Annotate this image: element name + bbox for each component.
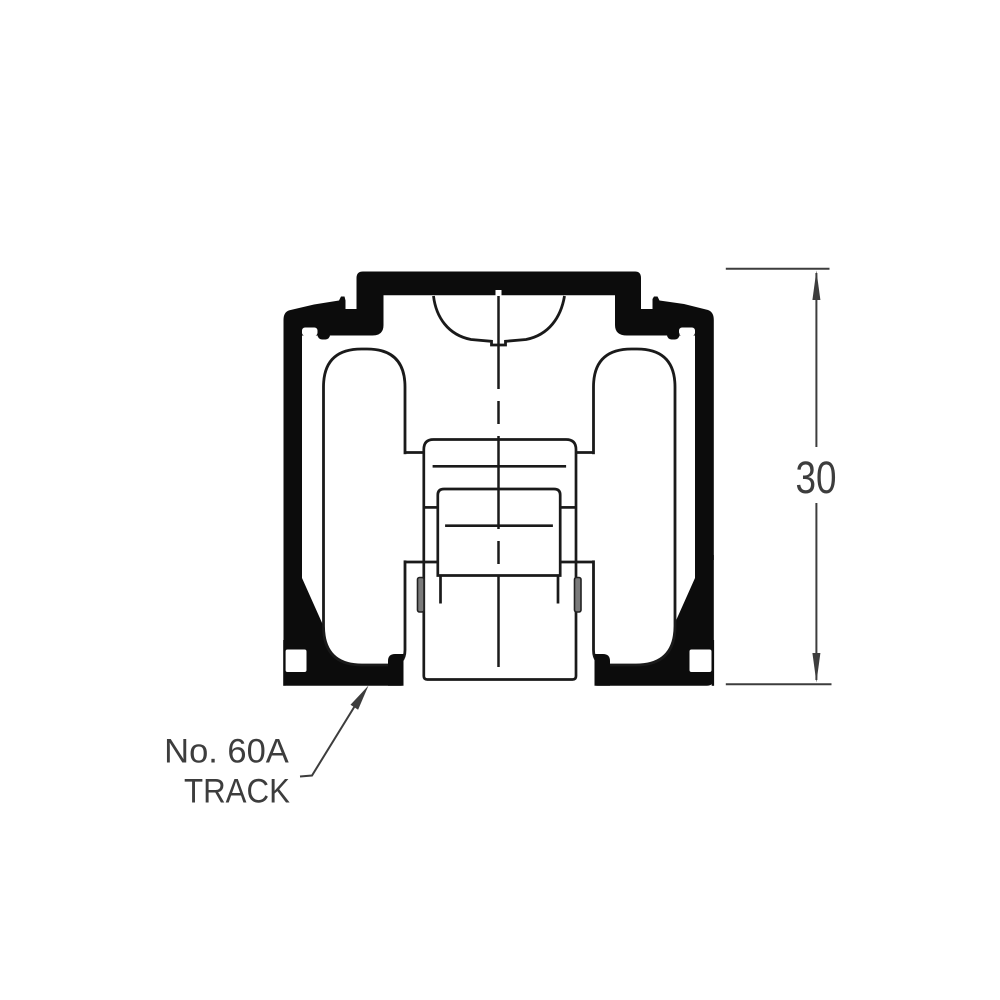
- svg-text:30: 30: [796, 452, 837, 503]
- svg-text:TRACK: TRACK: [184, 773, 290, 811]
- svg-text:No. 60A: No. 60A: [164, 733, 289, 771]
